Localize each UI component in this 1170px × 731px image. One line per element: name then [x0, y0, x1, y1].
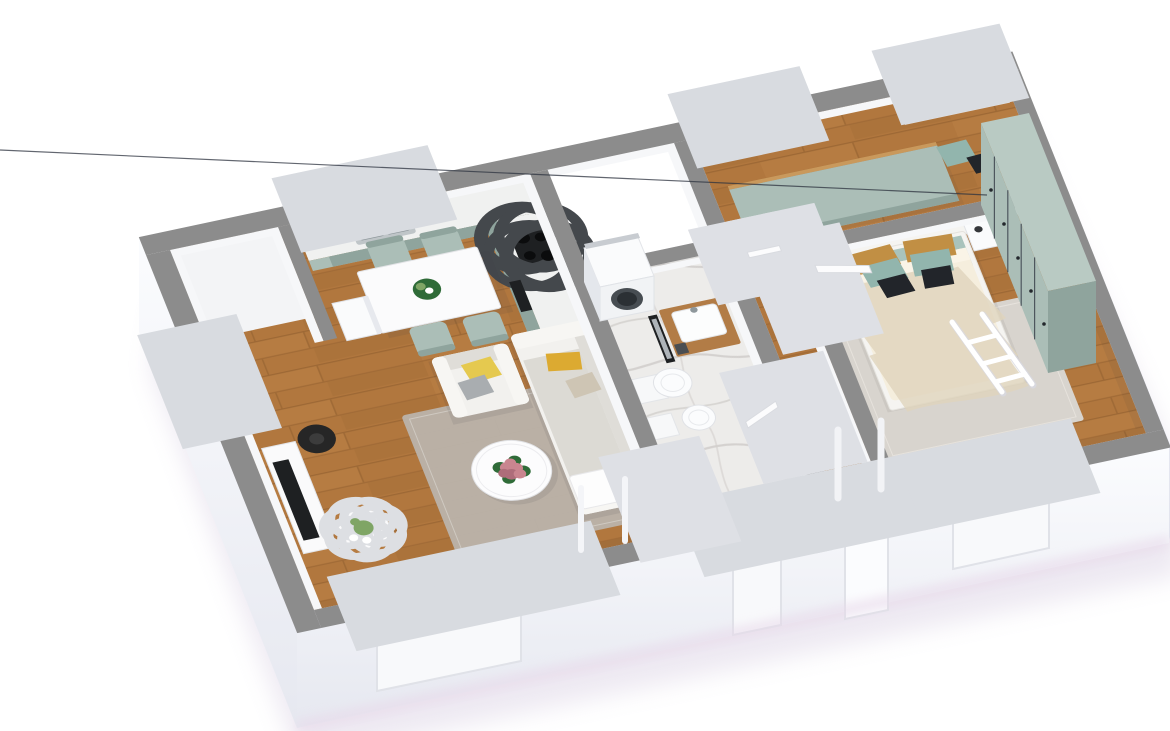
bedroom-door-jamb-b — [809, 307, 832, 316]
bedroom-door-jamb-a — [791, 261, 814, 270]
living-window-mullion — [471, 579, 477, 593]
west-window — [189, 353, 230, 411]
bath-door-jamb-a — [771, 389, 797, 400]
second-room-window-a — [720, 105, 778, 130]
bath-door-jamb-b — [789, 434, 815, 445]
kitchen-window — [324, 184, 406, 215]
second-room-window-b — [924, 62, 978, 87]
living-door-jamb-b — [667, 515, 690, 524]
bedroom-window — [947, 457, 1049, 492]
entrance-opening — [839, 491, 887, 514]
living-door-jamb-a — [650, 474, 673, 483]
wardrobe-side — [1048, 281, 1096, 373]
washer-door-glass — [617, 292, 637, 306]
floor-plan-svg — [0, 0, 1170, 731]
floor-plan-render — [0, 0, 1170, 731]
